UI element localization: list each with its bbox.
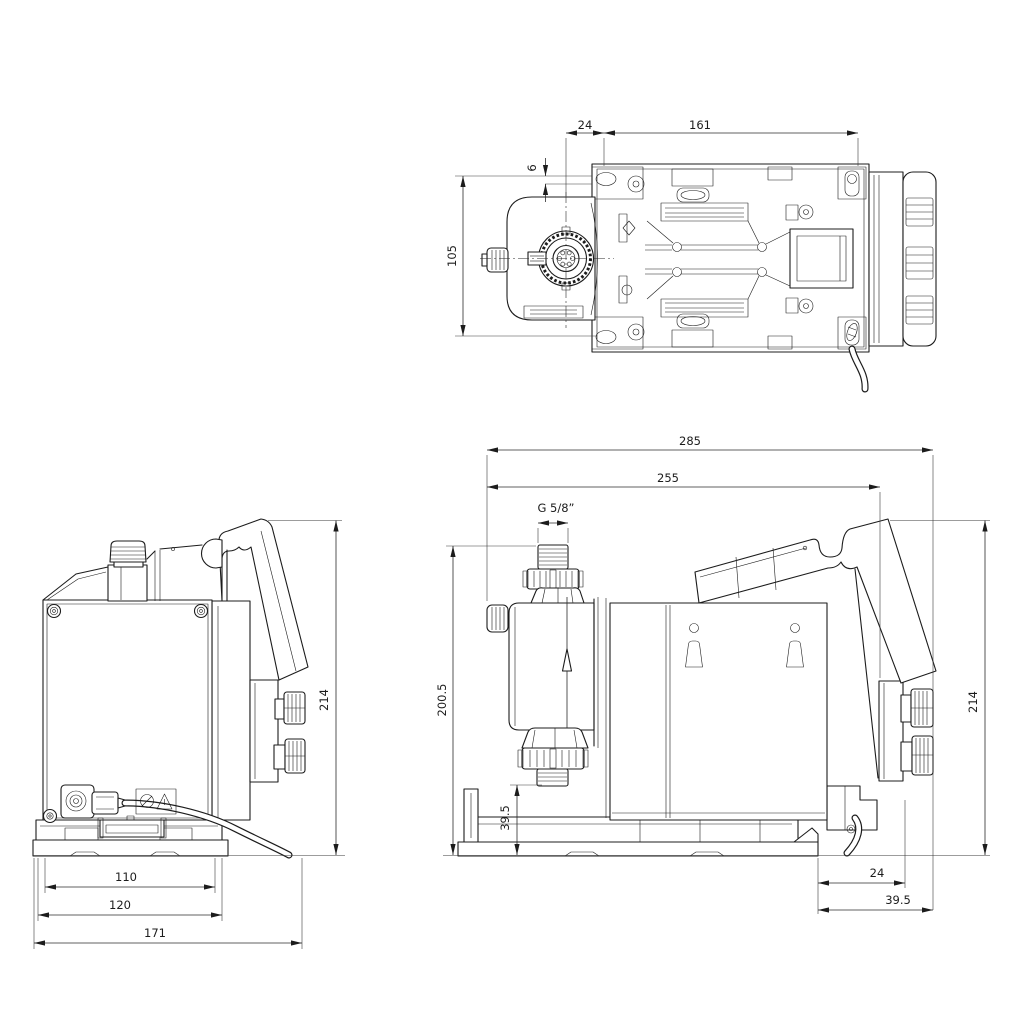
dosing-head-top xyxy=(480,192,614,328)
dim-label-side-200-5: 200.5 xyxy=(435,684,449,717)
dim-label-side-24: 24 xyxy=(870,866,885,880)
connector-knob-icon xyxy=(901,689,933,727)
front-view: 214 110 120 171 xyxy=(33,519,345,949)
drawing-canvas: 24 161 6 105 xyxy=(0,0,1024,1024)
plug-body xyxy=(92,792,118,814)
dim-label-top-24: 24 xyxy=(578,118,593,132)
wall-clamp xyxy=(100,820,164,837)
baseplate-outline xyxy=(592,164,869,352)
dimensional-drawing: 24 161 6 105 xyxy=(0,0,1024,1024)
baseplate xyxy=(592,164,869,352)
motor-bracket xyxy=(827,786,877,830)
base-plate xyxy=(33,840,228,856)
dim-label-top-105: 105 xyxy=(445,245,459,267)
base-rail xyxy=(466,817,798,842)
arm-column xyxy=(879,681,903,781)
dim-label-front-171: 171 xyxy=(144,926,166,940)
connector-knob-icon xyxy=(901,736,933,775)
dim-label-side-39-5-v: 39.5 xyxy=(498,805,512,831)
connector-knob-icon xyxy=(274,739,305,773)
dim-label-front-214: 214 xyxy=(317,689,331,711)
top-view: 24 161 6 105 xyxy=(445,118,936,389)
dosing-head-outline xyxy=(509,603,594,730)
thread-stud xyxy=(537,769,568,786)
deaeration-knob-icon xyxy=(487,605,508,632)
dosing-head xyxy=(487,545,606,818)
base-plate xyxy=(458,842,818,856)
pump-body xyxy=(610,603,827,820)
dim-label-top-161: 161 xyxy=(689,118,711,132)
dim-label-side-thread: G 5/8” xyxy=(537,501,574,515)
connector-tower xyxy=(108,565,147,601)
deaeration-knob-icon xyxy=(487,248,508,272)
dim-label-side-214: 214 xyxy=(966,691,980,713)
coupling-nut xyxy=(527,569,579,589)
dim-label-front-110: 110 xyxy=(115,870,137,884)
dim-label-front-120: 120 xyxy=(109,898,131,912)
suction-connector xyxy=(518,728,588,786)
dim-label-side-39-5-h: 39.5 xyxy=(885,893,911,907)
valve-bell xyxy=(531,588,584,603)
side-view: 285 255 G 5/8” 200.5 39.5 214 24 39.5 xyxy=(435,434,990,914)
dim-label-side-285: 285 xyxy=(679,434,701,448)
discharge-connector xyxy=(523,545,584,603)
screw-icon xyxy=(44,810,57,823)
coupling-nut xyxy=(522,748,584,769)
dim-label-side-255: 255 xyxy=(657,471,679,485)
dim-label-top-6: 6 xyxy=(525,164,539,171)
handle-recess xyxy=(202,539,223,568)
body-outline xyxy=(610,603,827,820)
roof xyxy=(43,539,222,601)
connector-knob-icon xyxy=(275,692,305,724)
